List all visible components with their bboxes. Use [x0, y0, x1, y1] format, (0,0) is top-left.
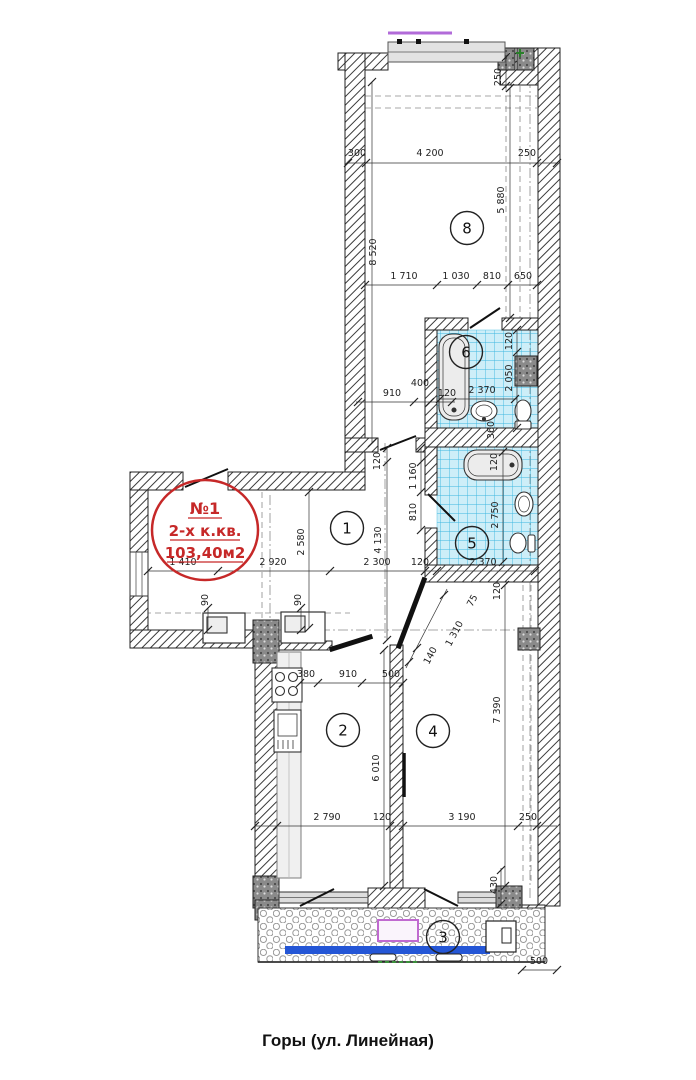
dimension-label: 5 880: [496, 186, 507, 213]
dimension-label: 120: [372, 452, 383, 470]
toilet-icon: [515, 400, 531, 429]
dimension-label: 2 370: [469, 557, 496, 568]
balcony-door-leaf-right: [424, 889, 458, 906]
dimension-label: 2 370: [468, 385, 495, 396]
fridge-icon: [274, 710, 301, 752]
dimension-label: 250: [518, 148, 536, 159]
wall-corridor-bath-upper: [425, 330, 437, 495]
dimension-label: 500: [382, 669, 400, 680]
column: [253, 620, 279, 663]
floor-plan-page: 3004 2002501 7101 0308106509104001202 37…: [0, 0, 696, 1080]
dimension-label: 1 160: [408, 462, 419, 489]
floor-plan-svg: 3004 2002501 7101 0308106509104001202 37…: [0, 0, 696, 1080]
stamp-type: 2-х к.кв.: [169, 522, 242, 540]
dimension-label: 120: [489, 453, 500, 471]
dimension-label: 400: [411, 378, 429, 389]
toilet-icon: [510, 533, 535, 553]
dimension-label: 910: [383, 388, 401, 399]
dimension-label: 2 300: [363, 557, 390, 568]
dimension-label: 500: [530, 956, 548, 967]
sink-icon: [515, 492, 533, 516]
dimension-tick: [413, 644, 421, 652]
dimension-label: 90: [200, 594, 211, 606]
wall-hall-left-upper: [130, 490, 148, 552]
diagonal-walls: [332, 580, 424, 649]
room-number: 6: [461, 344, 471, 362]
dimension-label: 120: [492, 582, 503, 600]
balcony-top-glazing: [388, 33, 524, 62]
entry-door-leaf: [185, 469, 228, 487]
dimension-label: 2 920: [259, 557, 286, 568]
dimension-label: 2 750: [490, 501, 501, 528]
dimension-label: 8 520: [368, 238, 379, 265]
balcony-bottom: [258, 908, 545, 962]
dimension-label: 910: [339, 669, 357, 680]
dimension-label: 810: [408, 503, 419, 521]
dimension-label: 380: [297, 669, 315, 680]
dimension-label: 360: [486, 421, 497, 439]
dimension-label: 250: [493, 68, 504, 86]
dimension-label: 2 790: [313, 812, 340, 823]
room-circle: 1: [331, 512, 364, 545]
sink-icon: [471, 401, 497, 421]
room-circle: 2: [327, 714, 360, 747]
wall-room2-room4: [390, 645, 403, 888]
wall-bottom-pier: [368, 888, 425, 908]
room-number: 1: [342, 520, 352, 538]
room-number: 3: [438, 929, 448, 947]
dimension-label: 1 310: [444, 619, 466, 648]
dimension-label: 4 130: [373, 526, 384, 553]
room-circle: 4: [417, 715, 450, 748]
dimension-label: 7 390: [492, 696, 503, 723]
dimension-label: 650: [514, 271, 532, 282]
fixtures: [203, 334, 535, 878]
dimension-label: 140: [422, 645, 440, 666]
wall-left-upper: [345, 53, 365, 472]
room-number: 2: [338, 722, 348, 740]
dimension-label: 2 580: [296, 528, 307, 555]
stamp-area: 103,40м2: [165, 544, 246, 562]
stamp-number: №1: [190, 499, 220, 518]
dimension-label: 90: [293, 594, 304, 606]
dimension-label: 75: [465, 593, 480, 609]
vent-shaft-icon: [515, 356, 537, 386]
room-number: 4: [428, 723, 438, 741]
dimension-label: 810: [483, 271, 501, 282]
room-number: 5: [467, 535, 477, 553]
wall-between-baths: [425, 428, 538, 447]
wall-bath6-top-left: [425, 318, 468, 330]
dimension-label: 6 010: [371, 754, 382, 781]
purple-box: [378, 920, 418, 941]
room-circle: 8: [451, 212, 484, 245]
dimension-label: 120: [411, 557, 429, 568]
wall-right-outer: [538, 48, 560, 906]
dimension-label: 120: [504, 332, 515, 350]
diagonal-wall-room4: [399, 580, 424, 646]
apartment-stamp: №1 2-х к.кв. 103,40м2: [152, 480, 258, 580]
wall-hall-top-right: [228, 472, 365, 490]
plan-caption: Горы (ул. Линейная): [0, 1031, 696, 1051]
dimension-label: 430: [489, 876, 500, 894]
blue-bar: [285, 946, 490, 954]
wall-corridor-top-left: [345, 438, 378, 452]
dimension-tick: [440, 591, 448, 599]
room-number: 8: [462, 220, 472, 238]
diagonal-wall-kitchen: [332, 637, 370, 649]
dimension-label: 120: [373, 812, 391, 823]
column: [518, 628, 540, 650]
dimension-label: 1 710: [390, 271, 417, 282]
dimension-label: 300: [348, 148, 366, 159]
dimension-label: 3 190: [448, 812, 475, 823]
dimension-label: 2 050: [504, 364, 515, 391]
dimension-label: 250: [519, 812, 537, 823]
dimension-label: 120: [438, 388, 456, 399]
dimension-label: 4 200: [416, 148, 443, 159]
dimension-label: 1 030: [442, 271, 469, 282]
bath6-door-leaf: [470, 308, 500, 328]
dimension-tick: [405, 658, 413, 666]
